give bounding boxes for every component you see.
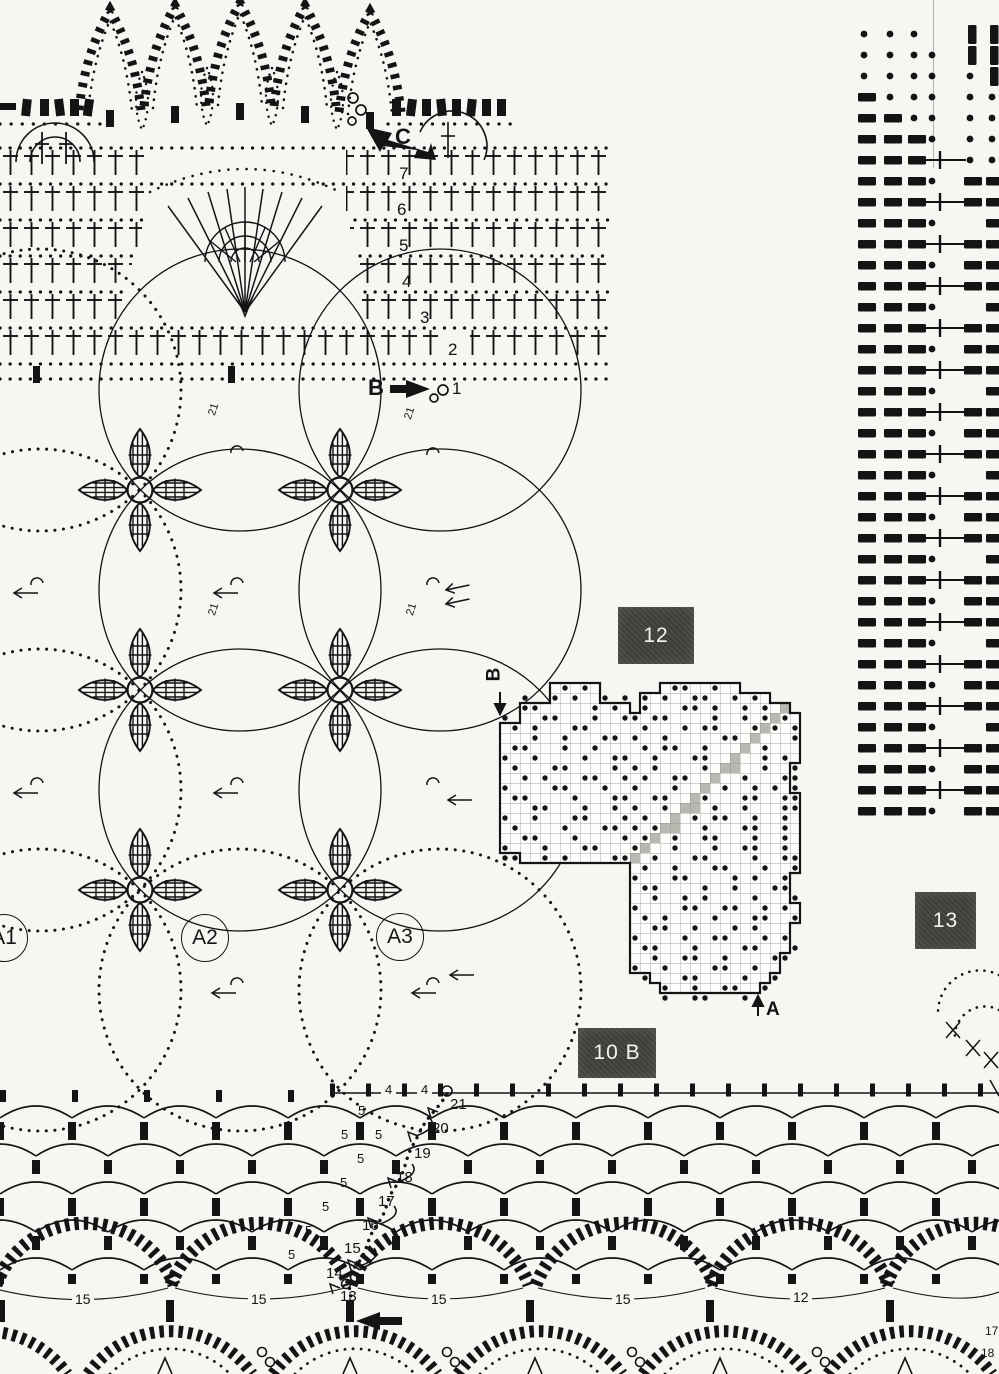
five-a: 5 [358,1104,365,1117]
bottom-edging-chart [0,1080,999,1374]
repeat-15-4: 15 [612,1292,634,1306]
edging-row-4: 4 [402,273,411,290]
five-c: 5 [375,1128,382,1141]
pineapple-fan [150,169,340,316]
motif-chart [0,380,520,1010]
repeat-12: 12 [790,1290,812,1304]
symbol-strip-chart [845,0,999,840]
motif-label-a3: A3 [376,913,424,961]
motif-label-a3-text: A3 [387,925,413,949]
chart-13-badge-text: 13 [933,909,958,933]
chain-21: 21 [450,1097,467,1112]
scallop-lace-edge [0,1331,992,1374]
chain-15: 15 [344,1241,361,1256]
chart-12-badge: 12 [618,607,694,664]
five-d: 5 [357,1152,364,1165]
flower-motifs [79,429,401,951]
repeat-15-3: 15 [428,1292,450,1306]
chain-17: 17 [378,1194,395,1209]
repeat-15-2: 15 [248,1292,270,1306]
edging-row-6: 6 [397,201,406,218]
chart-13-badge: 13 [915,892,976,949]
chain-19: 19 [414,1146,431,1161]
petal-motifs [79,3,401,130]
foundation-row [0,1090,999,1096]
five-e: 5 [340,1176,347,1189]
five-f: 5 [322,1200,329,1213]
five-b: 5 [341,1128,348,1141]
corner-ref-18: 18 [981,1347,994,1359]
edging-top-borders [0,98,506,116]
chart-12-badge-text: 12 [643,624,668,648]
motif-label-a2: A2 [181,914,229,962]
repeat-15-1: 15 [72,1292,94,1306]
chain-20: 20 [432,1121,449,1136]
edging-row-7: 7 [399,165,408,182]
five-h: 5 [288,1248,295,1261]
filet-point-a-label: A [766,1000,780,1019]
arrow-bottom-start [356,1312,402,1330]
filet-chart [490,660,820,1025]
chain-14: 14 [326,1266,343,1281]
chart-10b-badge-text: 10 B [593,1041,640,1065]
five-g: 5 [305,1224,312,1237]
edging-row-3: 3 [420,309,429,326]
filet-point-b-label: B [484,668,503,682]
strip-rows [858,25,999,816]
edging-row-2: 2 [448,341,457,358]
scanned-crochet-chart-page: C B 7 6 5 4 3 2 1 [0,0,999,1374]
chain-16: 16 [362,1218,379,1233]
edging-row-5: 5 [399,237,408,254]
edging-cross-rows [0,150,612,362]
chain-18: 18 [396,1170,413,1185]
junction-hooks [31,446,439,985]
corner-ref-17: 17 [985,1325,998,1337]
motif-label-a1-text: A1 [0,926,17,950]
edging-point-c-label: C [395,126,411,148]
edging-chart [0,0,645,405]
chart-10b-badge: 10 B [578,1028,656,1078]
chain-13: 13 [340,1289,357,1304]
motif-label-a2-text: A2 [192,926,218,950]
tick-4-first: 4 [381,1083,396,1096]
tick-4-second: 4 [417,1083,432,1096]
